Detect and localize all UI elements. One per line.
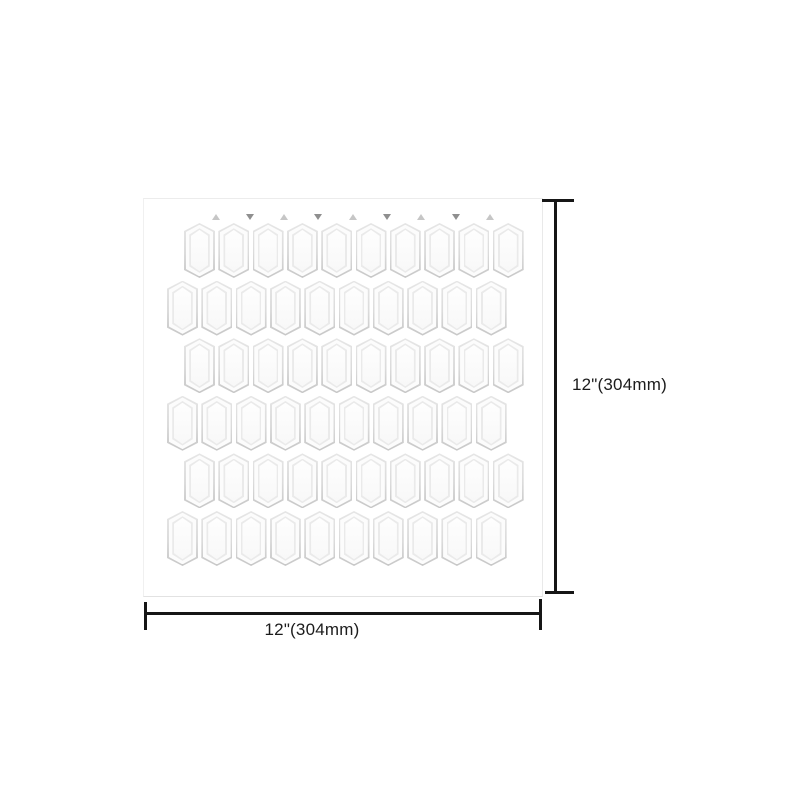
picket-tile — [373, 396, 404, 451]
picket-tile — [493, 453, 524, 508]
picket-tile — [304, 396, 335, 451]
picket-tile — [184, 223, 215, 278]
picket-tile — [184, 338, 215, 393]
alignment-marker-down-icon — [314, 214, 322, 220]
picket-tile — [476, 511, 507, 566]
picket-tile — [270, 281, 301, 336]
picket-tile — [493, 338, 524, 393]
picket-tile — [476, 396, 507, 451]
picket-tile — [287, 453, 318, 508]
picket-tile — [236, 396, 267, 451]
picket-tile — [356, 223, 387, 278]
product-diagram: 12"(304mm) 12"(304mm) — [0, 0, 800, 800]
picket-tile — [441, 396, 472, 451]
picket-tile — [321, 338, 352, 393]
alignment-marker-up-icon — [280, 214, 288, 220]
picket-tile — [218, 223, 249, 278]
picket-tile — [441, 511, 472, 566]
picket-tile — [253, 223, 284, 278]
picket-tile — [201, 511, 232, 566]
horizontal-dimension-tick-left — [144, 602, 147, 630]
picket-tile — [218, 338, 249, 393]
picket-tile — [236, 281, 267, 336]
picket-tile — [321, 223, 352, 278]
vertical-dimension-line — [554, 199, 557, 594]
picket-tile — [339, 281, 370, 336]
alignment-marker-up-icon — [212, 214, 220, 220]
picket-tile — [287, 338, 318, 393]
picket-tile — [407, 281, 438, 336]
picket-tile — [424, 453, 455, 508]
picket-tile — [390, 453, 421, 508]
vertical-dimension-cap-bottom — [545, 591, 574, 594]
picket-tile — [458, 223, 489, 278]
picket-tile — [424, 223, 455, 278]
picket-tile — [339, 511, 370, 566]
picket-tile — [287, 223, 318, 278]
alignment-marker-down-icon — [246, 214, 254, 220]
picket-tile — [407, 511, 438, 566]
picket-tile — [373, 511, 404, 566]
picket-tile — [253, 453, 284, 508]
picket-tile — [167, 511, 198, 566]
picket-tile — [356, 338, 387, 393]
picket-tile — [390, 338, 421, 393]
picket-tile — [441, 281, 472, 336]
picket-tile — [424, 338, 455, 393]
picket-tile — [201, 396, 232, 451]
picket-tile — [373, 281, 404, 336]
horizontal-dimension-tick-right — [539, 599, 542, 630]
alignment-marker-up-icon — [486, 214, 494, 220]
height-dimension-label: 12"(304mm) — [572, 374, 667, 395]
picket-tile — [218, 453, 249, 508]
picket-tile — [407, 396, 438, 451]
picket-tile — [390, 223, 421, 278]
alignment-marker-down-icon — [452, 214, 460, 220]
picket-tile — [167, 396, 198, 451]
picket-tile — [493, 223, 524, 278]
picket-tile — [236, 511, 267, 566]
alignment-marker-up-icon — [349, 214, 357, 220]
picket-tile — [458, 338, 489, 393]
picket-tile — [184, 453, 215, 508]
picket-tile — [167, 281, 198, 336]
picket-tile — [253, 338, 284, 393]
picket-tile — [356, 453, 387, 508]
alignment-marker-up-icon — [417, 214, 425, 220]
picket-tile — [321, 453, 352, 508]
tile-sheet — [143, 198, 543, 597]
width-dimension-label: 12"(304mm) — [212, 619, 412, 640]
picket-tile — [304, 511, 335, 566]
picket-tile — [339, 396, 370, 451]
picket-tile — [270, 396, 301, 451]
alignment-marker-down-icon — [383, 214, 391, 220]
picket-tile — [458, 453, 489, 508]
vertical-dimension-cap-top — [542, 199, 574, 202]
picket-tile — [476, 281, 507, 336]
horizontal-dimension-line — [145, 612, 541, 615]
picket-tile — [270, 511, 301, 566]
picket-tile — [304, 281, 335, 336]
picket-tile — [201, 281, 232, 336]
